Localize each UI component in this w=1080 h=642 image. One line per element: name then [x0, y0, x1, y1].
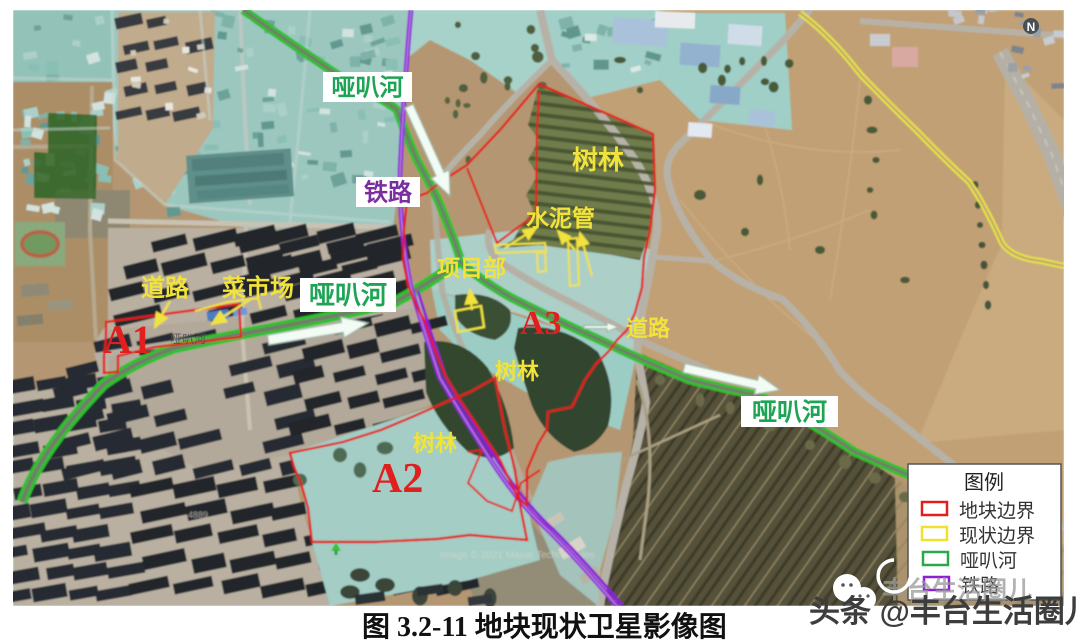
svg-text:项目部: 项目部 — [437, 255, 506, 281]
svg-text:哑叭河: 哑叭河 — [960, 550, 1017, 572]
svg-text:树林: 树林 — [572, 146, 624, 175]
svg-text:现状边界: 现状边界 — [959, 525, 1035, 547]
svg-text:道路: 道路 — [626, 316, 671, 341]
svg-text:哑叭河: 哑叭河 — [332, 74, 404, 101]
svg-text:N: N — [1027, 20, 1036, 34]
svg-text:图例: 图例 — [964, 471, 1004, 494]
svg-text:道路: 道路 — [141, 274, 190, 302]
svg-text:头条 @丰台生活圈儿: 头条 @丰台生活圈儿 — [809, 594, 1080, 629]
svg-text:哑叭河: 哑叭河 — [170, 332, 206, 346]
svg-text:菜市场: 菜市场 — [221, 274, 294, 302]
svg-text:4889: 4889 — [188, 510, 208, 520]
svg-text:地块边界: 地块边界 — [959, 500, 1035, 522]
svg-text:铁路: 铁路 — [364, 178, 413, 206]
svg-text:图 3.2-11 地块现状卫星影像图: 图 3.2-11 地块现状卫星影像图 — [362, 611, 727, 642]
svg-text:哑叭河: 哑叭河 — [752, 398, 827, 426]
svg-text:哑叭河: 哑叭河 — [309, 281, 387, 310]
svg-text:树林: 树林 — [413, 431, 457, 456]
svg-text:树林: 树林 — [495, 359, 539, 384]
svg-text:A1: A1 — [103, 317, 152, 362]
svg-text:A3: A3 — [520, 305, 562, 342]
svg-text:A2: A2 — [372, 456, 423, 502]
svg-text:水泥管: 水泥管 — [526, 205, 595, 231]
